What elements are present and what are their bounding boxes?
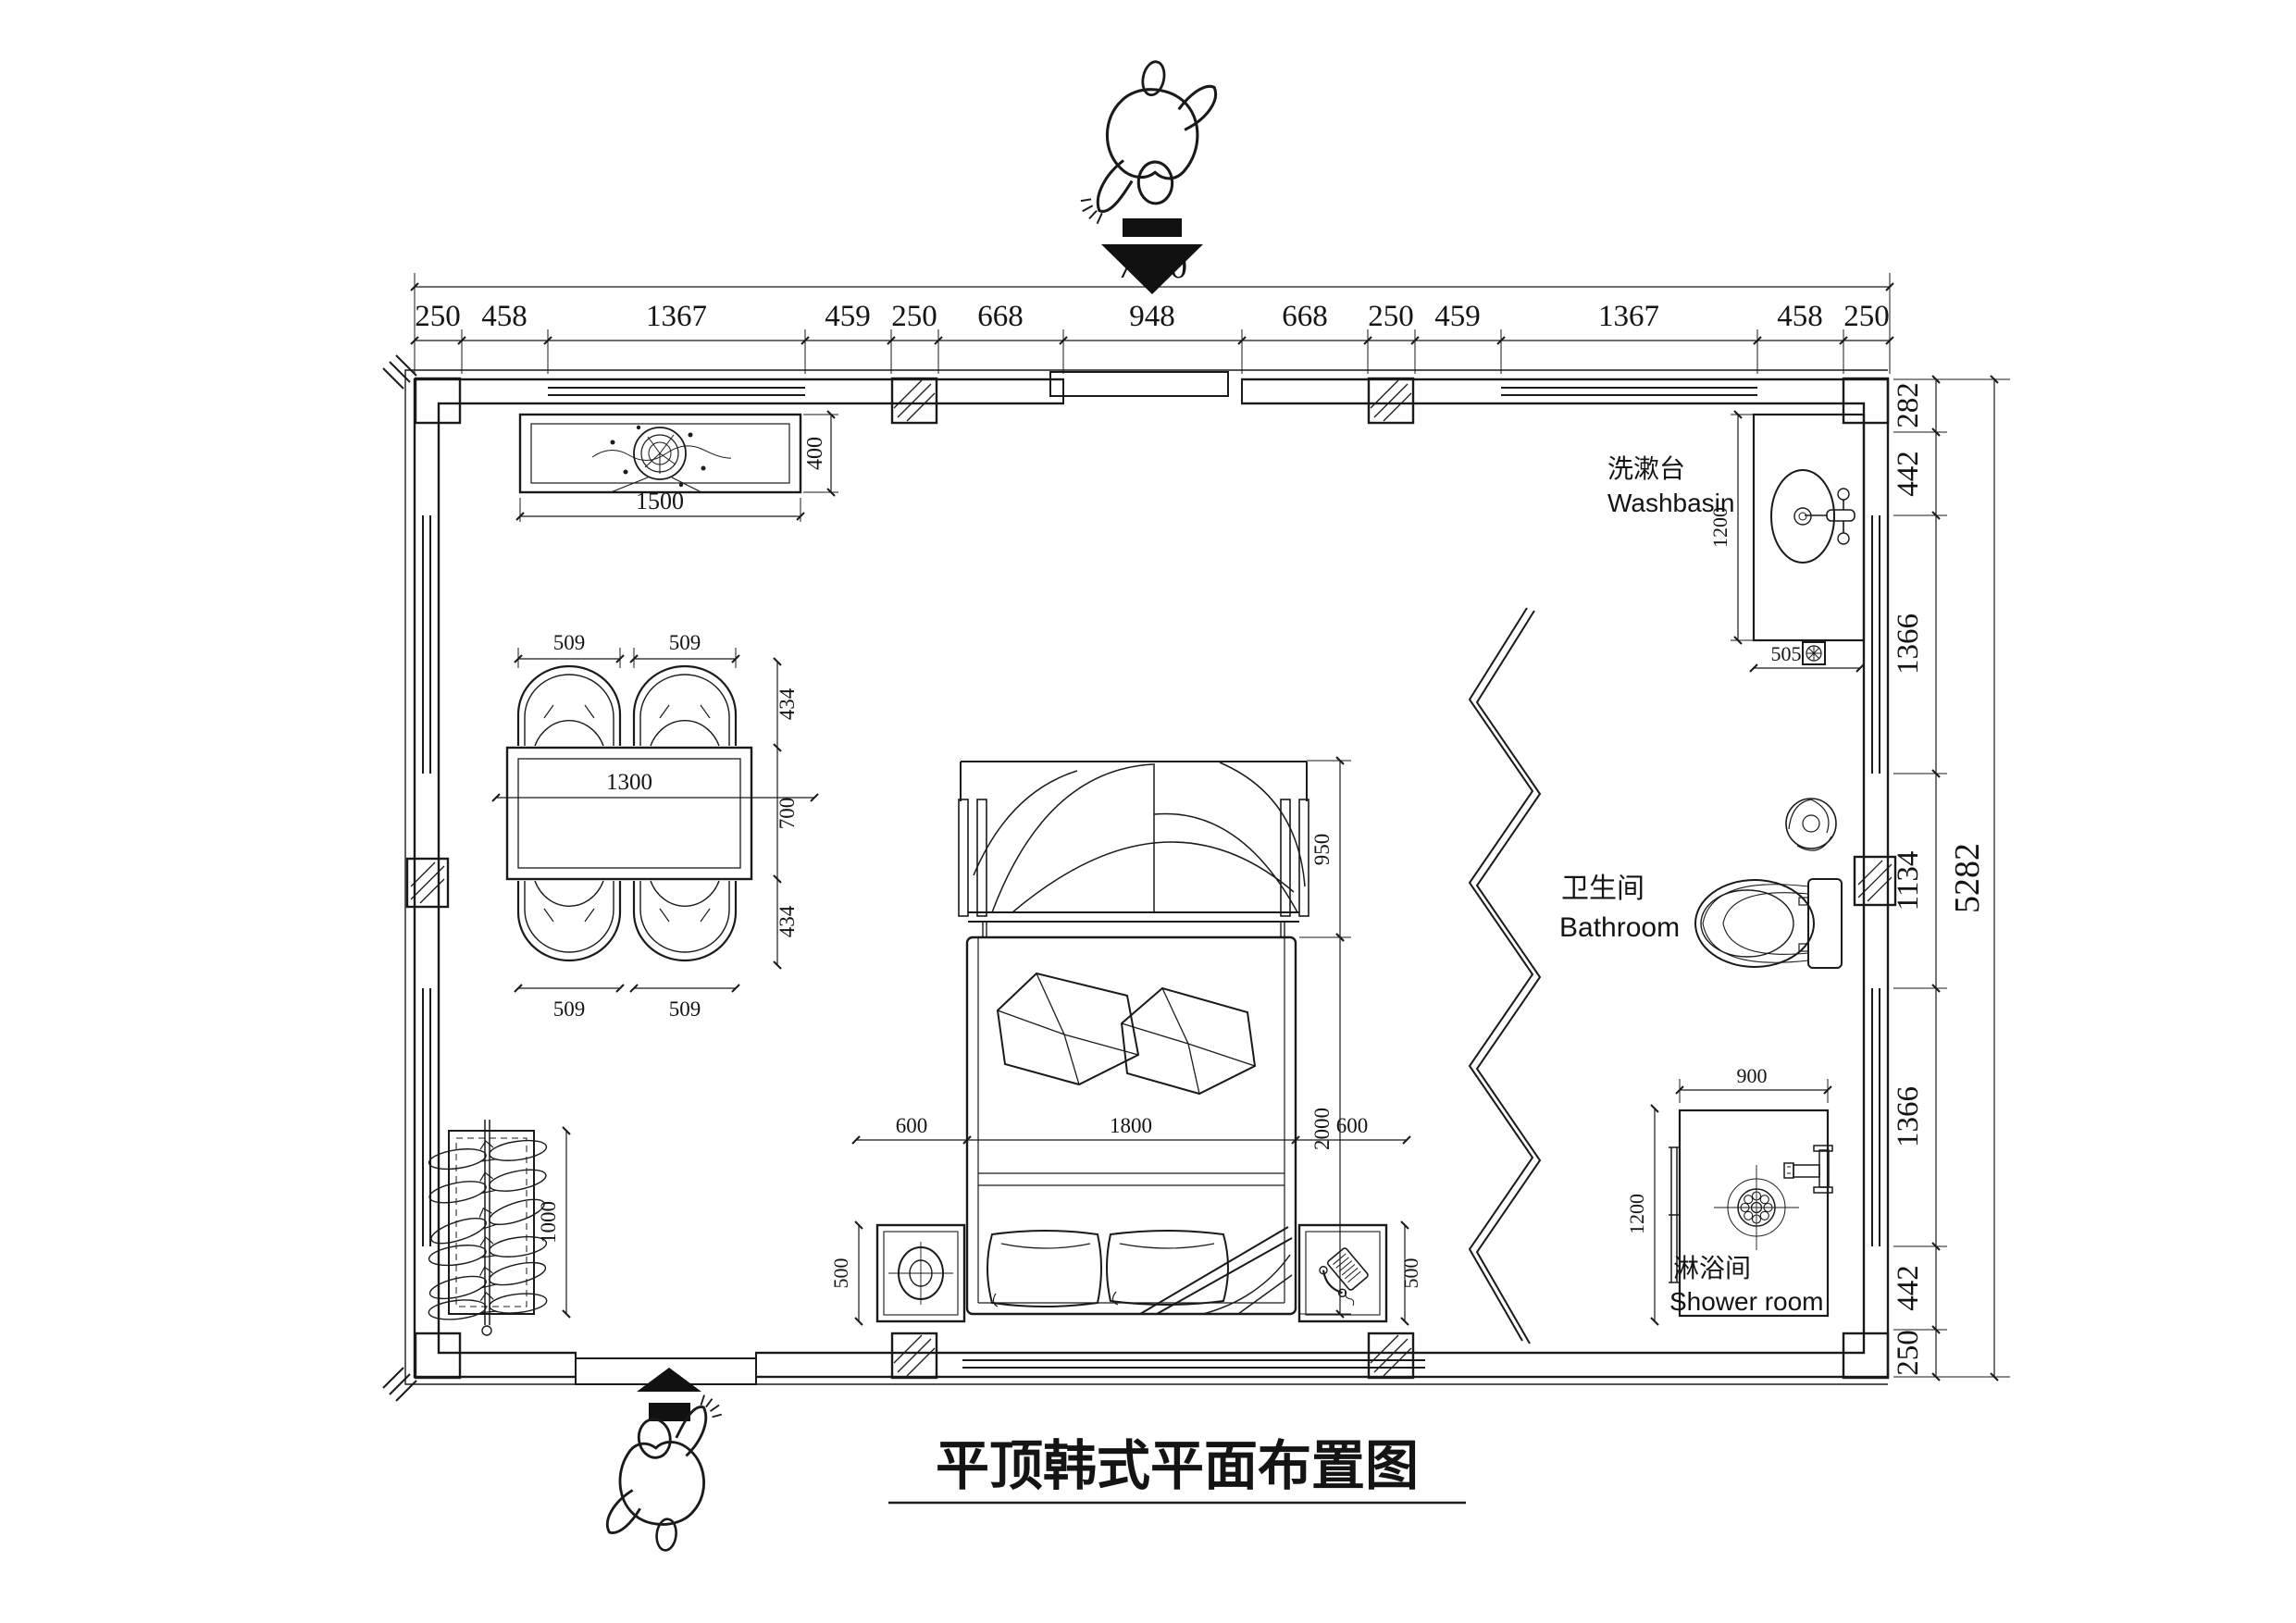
dim-top-9: 459 xyxy=(1434,300,1481,333)
window-top-left xyxy=(548,388,805,395)
bathroom-area: 卫生间 Bathroom xyxy=(1559,799,1842,968)
dim-bed-canopy: 950 xyxy=(1310,834,1334,866)
label-washbasin-en: Washbasin xyxy=(1607,489,1734,517)
window-left-lower xyxy=(423,988,430,1246)
label-bathroom-en: Bathroom xyxy=(1559,912,1680,943)
window-right-lower xyxy=(1872,988,1880,1246)
dim-top-0: 250 xyxy=(415,300,461,333)
window-bottom xyxy=(962,1360,1425,1368)
corner-hatch-marks xyxy=(383,355,416,1401)
dim-right-4: 1366 xyxy=(1892,1086,1925,1147)
dim-bed-length: 2000 xyxy=(1310,1108,1334,1150)
window-right-upper xyxy=(1872,515,1880,774)
drawing-title: 平顶韩式平面布置图 xyxy=(936,1436,1419,1496)
dim-top-7: 668 xyxy=(1282,300,1328,333)
dining-table xyxy=(507,748,751,879)
outer-boundary-line xyxy=(405,370,1888,1384)
dim-top-12: 250 xyxy=(1843,300,1890,333)
dim-top-10: 1367 xyxy=(1598,300,1659,333)
entry-bottom xyxy=(591,1368,739,1560)
bed-blanket-fold xyxy=(1140,1227,1292,1314)
dining-chair xyxy=(518,881,620,960)
dim-right-1: 442 xyxy=(1892,451,1925,497)
dim-counter-width: 1500 xyxy=(636,488,684,514)
toilet xyxy=(1695,879,1842,968)
dim-top-3: 459 xyxy=(825,300,871,333)
dim-counter-depth: 400 xyxy=(803,437,827,470)
dim-top-1: 458 xyxy=(481,300,527,333)
ceiling-counter: 1500 400 xyxy=(520,415,838,522)
floorplan-sheet: 7850 250 458 1367 459 250 668 948 668 25… xyxy=(0,0,2296,1623)
dim-top-6: 948 xyxy=(1129,300,1175,333)
dim-top-2: 1367 xyxy=(646,300,707,333)
nightstand-right xyxy=(1299,1225,1386,1321)
shower-arm xyxy=(1784,1146,1832,1193)
dim-right-6: 250 xyxy=(1892,1330,1925,1376)
dim-shower-depth: 1200 xyxy=(1625,1194,1648,1234)
dim-chair-depth: 434 xyxy=(776,905,799,937)
dining-set: 509 509 509 509 1300 434 700 434 xyxy=(496,631,814,1021)
label-shower-zh: 淋浴间 xyxy=(1673,1254,1751,1282)
telephone xyxy=(1318,1247,1378,1308)
dim-rack-length: 1000 xyxy=(537,1201,560,1244)
entry-top xyxy=(1076,57,1221,294)
dim-right-5: 442 xyxy=(1892,1265,1925,1311)
dining-chair xyxy=(518,666,620,746)
bed-canopy xyxy=(959,762,1309,938)
dim-right-3: 1134 xyxy=(1892,851,1925,911)
dim-bed-width: 1800 xyxy=(1110,1114,1152,1137)
washbasin-counter xyxy=(1754,415,1864,640)
dim-nightstand: 500 xyxy=(829,1258,852,1289)
shower-outline xyxy=(1680,1110,1828,1316)
dim-table-width: 1300 xyxy=(606,770,652,795)
label-bathroom-zh: 卫生间 xyxy=(1561,873,1644,904)
right-dimension-chain: 282 442 1366 1134 1366 442 250 5282 xyxy=(1892,379,2010,1377)
shower-area: 900 1200 淋浴间 Shower room xyxy=(1625,1064,1832,1321)
washbasin-bowl xyxy=(1771,470,1834,563)
window-left-upper xyxy=(423,515,430,774)
drawing-title-block: 平顶韩式平面布置图 xyxy=(888,1436,1466,1503)
dim-chair: 509 xyxy=(669,631,701,654)
counter-decor xyxy=(592,426,731,492)
clothes-rack: 1000 xyxy=(427,1120,566,1335)
dining-chair xyxy=(634,881,736,960)
dining-chair xyxy=(634,666,736,746)
dim-bed-side: 600 xyxy=(896,1114,928,1137)
dim-right-2: 1366 xyxy=(1892,613,1925,675)
label-shower-en: Shower room xyxy=(1669,1287,1824,1316)
dim-right-0: 282 xyxy=(1892,382,1925,428)
window-top-right xyxy=(1501,388,1757,395)
washbasin-area: 1200 505 洗漱台 Washbasin xyxy=(1607,415,1864,668)
dim-table-depth: 700 xyxy=(776,798,799,830)
dim-nightstand: 500 xyxy=(1399,1258,1422,1289)
folding-screen xyxy=(1470,608,1540,1344)
dim-top-11: 458 xyxy=(1777,300,1823,333)
door-top xyxy=(1050,372,1242,406)
person-figure-top xyxy=(1076,57,1221,224)
dim-right-total: 5282 xyxy=(1948,843,1987,913)
dim-chair: 509 xyxy=(553,631,586,654)
dim-chair: 509 xyxy=(553,997,586,1021)
dim-top-5: 668 xyxy=(977,300,1024,333)
hangers xyxy=(427,1133,548,1321)
entry-arrow-bar-top xyxy=(1123,218,1182,237)
label-washbasin-zh: 洗漱台 xyxy=(1607,454,1685,483)
floorplan-svg: 7850 250 458 1367 459 250 668 948 668 25… xyxy=(0,0,2296,1623)
dim-chair-depth: 434 xyxy=(776,688,799,720)
bed-group: 500 500 600 1800 600 950 2000 xyxy=(829,761,1422,1321)
dim-top-4: 250 xyxy=(891,300,937,333)
nightstand-left xyxy=(877,1225,964,1321)
exhaust-fan xyxy=(1786,799,1836,850)
bed-head-pillows xyxy=(998,973,1255,1094)
dim-shower-width: 900 xyxy=(1737,1064,1768,1087)
faucet xyxy=(1805,489,1855,544)
dim-washbasin-drain: 505 xyxy=(1771,642,1802,665)
dim-top-8: 250 xyxy=(1368,300,1414,333)
dim-chair: 509 xyxy=(669,997,701,1021)
dim-bed-side: 600 xyxy=(1336,1114,1369,1137)
floor-drain xyxy=(1803,642,1825,664)
